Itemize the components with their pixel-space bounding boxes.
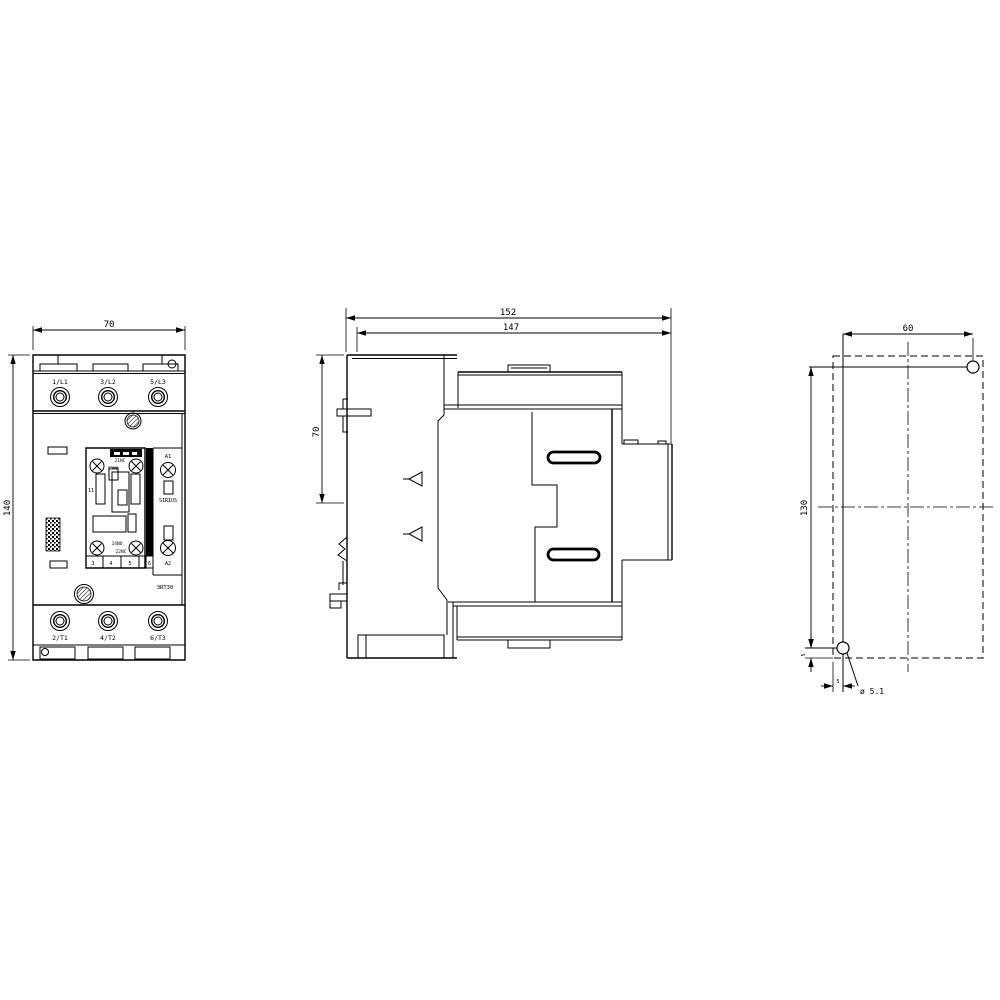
front-bottom-terminals: 2/T1 4/T2 6/T3 — [51, 612, 168, 643]
terminal-label-1L1: 1/L1 — [52, 378, 68, 386]
front-upper-fixing-screw-icon — [125, 413, 141, 429]
aux-top-nc-label: 21NC — [115, 458, 126, 464]
size-row-4: 4 — [109, 561, 112, 567]
drill-plan-drawing: 60 130 5 5 ø 5.1 — [780, 290, 1000, 710]
front-top-terminals: 1/L1 3/L2 5/L3 — [51, 378, 168, 407]
side-dim-body-depth-label: 147 — [503, 323, 519, 333]
front-coil-strip: A1 SIRIUS A2 — [153, 448, 182, 575]
drill-dim-vertical: 130 — [800, 367, 811, 648]
side-top-box — [444, 365, 622, 409]
series-label: 3RT30 — [157, 585, 174, 591]
front-lower-fixing-screw-icon — [75, 585, 94, 604]
drill-dim-horizontal-label: 60 — [903, 324, 914, 334]
technical-drawing-canvas: 70 140 — [0, 0, 1000, 1000]
drill-dim-edge-horizontal-label: 5 — [836, 679, 839, 685]
brand-label: SIRIUS — [159, 498, 177, 504]
terminal-screw-icon — [51, 612, 168, 631]
side-main-body — [403, 409, 622, 602]
din-rail-clip-lower — [330, 537, 347, 608]
side-view-drawing: 152 147 70 — [300, 280, 700, 680]
aux-divider-bar — [146, 448, 153, 556]
side-dim-total-depth-label: 152 — [500, 308, 516, 318]
drill-dim-edge-horizontal: 5 — [821, 662, 855, 692]
terminal-label-6T3: 6/T3 — [150, 634, 166, 642]
hole-diameter-label: ø 5.1 — [860, 687, 884, 696]
size-row-6: 6 — [148, 561, 151, 567]
side-dim-rail-height-label: 70 — [312, 427, 322, 438]
coil-a2-label: A2 — [165, 561, 171, 567]
drill-outline — [805, 334, 996, 692]
bottom-block-tab — [508, 640, 550, 648]
front-dim-height-label: 140 — [3, 500, 13, 516]
vent-slot-upper — [548, 452, 600, 463]
front-left-details — [46, 447, 67, 568]
pole-mark-label: 11 — [88, 488, 94, 494]
aux-screw-icon — [90, 459, 143, 555]
size-row-5: 5 — [128, 561, 131, 567]
mounting-hole-bottom-left — [837, 642, 849, 654]
aux-bottom-no-label: 14NO — [112, 541, 123, 547]
side-back-foot — [347, 635, 457, 658]
terminal-label-3L2: 3/L2 — [100, 378, 116, 386]
terminal-screw-icon — [51, 388, 168, 407]
coil-screw-icon — [161, 463, 176, 556]
vent-slot-lower — [548, 549, 599, 560]
side-back-plate — [330, 355, 457, 658]
aux-bottom-nc-label: 22NC — [116, 549, 127, 555]
terminal-label-4T2: 4/T2 — [100, 634, 116, 642]
front-dim-width: 70 — [33, 320, 185, 350]
front-view-drawing: 70 140 — [0, 300, 240, 700]
front-aux-block: 21NC 13NO 11 14NO 22NC 3 4 5 6 — [86, 448, 153, 568]
side-bottom-block — [448, 602, 622, 658]
side-dim-body-depth: 147 — [357, 323, 671, 352]
mounting-hole-top-right — [967, 361, 979, 373]
din-rail-clip-upper — [337, 399, 371, 432]
release-marker-icon — [403, 472, 422, 541]
terminal-label-5L3: 5/L3 — [150, 378, 166, 386]
aux-mechanism-detail — [93, 468, 140, 532]
drill-dim-edge-vertical: 5 — [801, 634, 833, 672]
side-connector-block — [622, 440, 672, 560]
drill-dim-edge-vertical-label: 5 — [801, 653, 807, 656]
front-dim-height: 140 — [3, 355, 30, 660]
terminal-label-2T1: 2/T1 — [52, 634, 68, 642]
front-dim-width-label: 70 — [104, 320, 115, 330]
side-dim-rail-height: 70 — [312, 355, 344, 503]
drill-dim-vertical-label: 130 — [800, 500, 810, 516]
coil-a1-label: A1 — [165, 454, 172, 460]
hole-diameter-callout: ø 5.1 — [847, 653, 884, 696]
size-row-3: 3 — [91, 561, 94, 567]
label-barcode — [46, 518, 60, 551]
